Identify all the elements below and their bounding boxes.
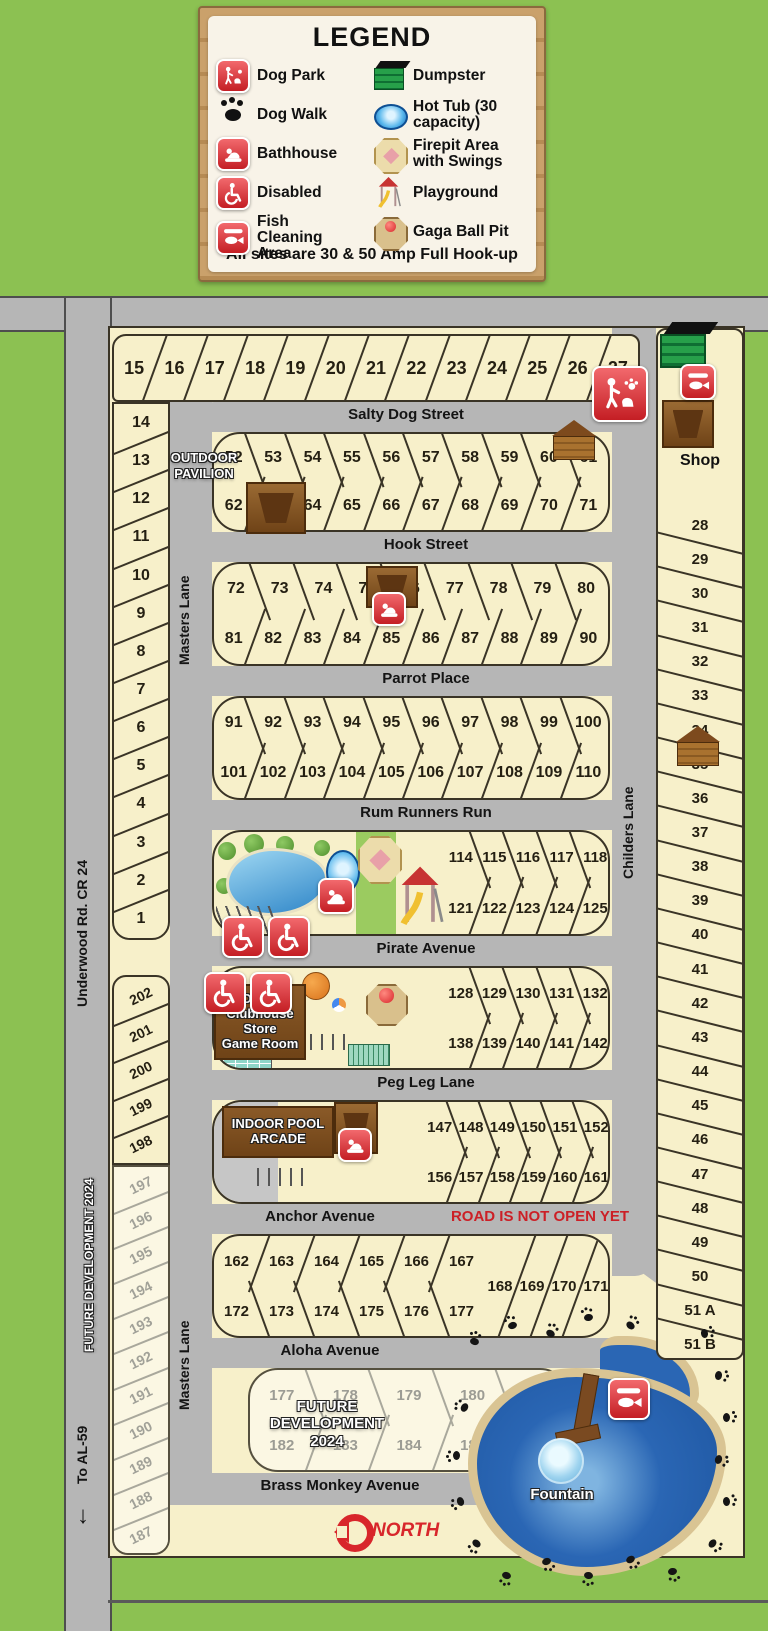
block-162-177: 162163164165166167 172173174175176177 16… [212,1234,610,1338]
dog-walk-paw-icon [453,1451,460,1460]
street-aloha: Aloha Avenue [210,1342,450,1359]
street-peg-leg: Peg Leg Lane [196,1074,656,1091]
playground-icon [372,176,406,210]
site-190: 190 [114,1413,168,1448]
firepit-icon [372,137,406,171]
site-12: 12 [114,480,168,518]
site-170: 170 [548,1236,580,1336]
street-parrot: Parrot Place [196,670,656,687]
legend-item-dog-park: Dog Park [216,58,372,94]
tree [314,840,330,856]
dog-park-icon [216,59,250,93]
fish-cleaning-icon-top [680,364,716,400]
site-171: 171 [580,1236,610,1336]
site-24: 24 [477,336,517,400]
parking-lines [248,1168,310,1186]
dog-walk-paw-icon [667,1567,677,1575]
disabled-icon-office-1 [204,972,246,1014]
gaga-ball-icon [372,215,406,249]
future-development-left-label: FUTURE DEVELOPMENT 2024 [82,1158,96,1373]
site-100: 100 [569,698,608,748]
street-brass-monkey: Brass Monkey Avenue [200,1477,480,1494]
dumpster-icon [660,322,706,368]
hot-tub-icon [372,98,406,132]
legend-item-playground: Playground [372,175,528,211]
site-125: 125 [578,883,610,934]
dog-walk-paw-icon [583,1571,593,1579]
site-197: 197 [114,1167,168,1202]
site-49: 49 [658,1225,742,1259]
street-hook: Hook Street [196,536,656,553]
site-48: 48 [658,1191,742,1225]
site-188: 188 [114,1483,168,1518]
legend-item-firepit: Firepit Area with Swings [372,136,528,172]
site-36: 36 [658,781,742,815]
site-167: 167 [439,1236,484,1286]
block-202-198: 202201200199198 [112,975,170,1165]
site-132: 132 [578,968,610,1018]
site-80: 80 [564,564,608,614]
north-label: NORTH [372,1520,439,1542]
disabled-icon-office-2 [250,972,292,1014]
gaga-ball-pit-icon [366,984,408,1026]
legend-footer: All sites are 30 & 50 Amp Full Hook-up [208,246,536,264]
dog-walk-paw-icon [216,98,250,132]
cabin-icon-61 [552,420,596,460]
volleyball-net-icon [348,1044,390,1066]
street-masters-upper: Masters Lane [176,555,192,685]
north-compass-icon [336,1514,374,1552]
block-top-row-15-27: 15161718192021222324252627 [112,334,640,402]
cabin-icon-35 [676,726,720,766]
site-187: 187 [114,1518,168,1553]
legend-item-dog-walk: Dog Walk [216,97,372,133]
basketball-icon [302,972,330,1000]
street-anchor: Anchor Avenue [210,1208,430,1225]
site-41: 41 [658,952,742,986]
site-17: 17 [195,336,235,400]
site-25: 25 [517,336,557,400]
road-not-open-note: ROAD IS NOT OPEN YET [430,1208,650,1225]
site-21: 21 [356,336,396,400]
tree [218,842,236,860]
site-118: 118 [578,832,610,883]
campground-map: 15161718192021222324252627 1413121110987… [0,0,768,1631]
beach-ball-icon [332,998,346,1012]
legend-item-hot-tub: Hot Tub (30 capacity) [372,97,528,133]
site-1: 1 [114,900,168,938]
legend-title: LEGEND [208,22,536,53]
bathhouse-icon [216,137,250,171]
shop-building [662,400,714,448]
site-152: 152 [581,1102,610,1152]
indoor-pool-sign: INDOOR POOL ARCADE [222,1106,334,1158]
street-to-al59: To AL-59 [74,1410,90,1500]
street-childers: Childers Lane [620,778,636,888]
south-boundary-line [108,1600,768,1603]
site-110: 110 [569,748,608,798]
firepit-icon [358,836,402,884]
indoor-pool-line: INDOOR POOL [232,1117,324,1132]
site-6: 6 [114,709,168,747]
legend-item-disabled: Disabled [216,175,372,211]
site-18: 18 [235,336,275,400]
dog-walk-paw-icon [723,1413,730,1422]
site-142: 142 [578,1018,610,1068]
street-pirate: Pirate Avenue [196,940,656,957]
shop-label: Shop [656,452,744,470]
site-194: 194 [114,1272,168,1307]
street-underwood: Underwood Rd. CR 24 [74,848,90,1018]
playground-icon [398,864,444,930]
legend-item-gaga-ball: Gaga Ball Pit [372,214,528,250]
office-line: Game Room [222,1037,299,1052]
site-201: 201 [114,1014,168,1051]
block-197-187-future: 197196195194193192191190189188187 [112,1165,170,1555]
block-72-90: 727374757677787980 81828384858687888990 [212,562,610,666]
fountain-icon [538,1438,584,1484]
site-30: 30 [658,576,742,610]
block-91-110: 919293949596979899100 101102103104105106… [212,696,610,800]
street-masters-lower: Masters Lane [176,1300,192,1430]
site-5: 5 [114,747,168,785]
legend-left-column: Dog Park Dog Walk Bathhouse Disabled [216,55,372,264]
site-196: 196 [114,1202,168,1237]
bathhouse-icon-pool [318,878,354,914]
legend-paper: LEGEND Dog Park Dog Walk Bathhouse [208,16,536,272]
block-right-column-28-51: 2829303132333435363738394041424344454647… [656,328,744,1360]
legend-item-bathhouse: Bathhouse [216,136,372,172]
dog-walk-paw-icon [501,1571,512,1581]
site-71: 71 [569,482,608,530]
disabled-icon [216,176,250,210]
site-20: 20 [316,336,356,400]
site-169: 169 [516,1236,548,1336]
dumpster-icon [372,59,406,93]
bathhouse-icon-hook [372,592,406,626]
street-salty-dog: Salty Dog Street [196,406,616,423]
bathhouse-icon-indoor-pool [338,1128,372,1162]
indoor-pool-line: ARCADE [250,1132,306,1147]
office-line: Store [243,1022,276,1037]
site-177: 177 [439,1286,484,1336]
site-90: 90 [569,614,608,664]
future-development-label: FUTUREDEVELOPMENT2024 [252,1398,402,1450]
legend-right-column: Dumpster Hot Tub (30 capacity) Firepit A… [372,55,528,264]
site-198: 198 [114,1126,168,1163]
fish-cleaning-icon [216,221,250,255]
outdoor-pavilion-building [246,482,306,534]
site-42: 42 [658,986,742,1020]
site-189: 189 [114,1448,168,1483]
fountain-label: Fountain [512,1486,612,1503]
fish-cleaning-icon-pond [608,1378,650,1420]
site-195: 195 [114,1237,168,1272]
legend-item-dumpster: Dumpster [372,58,528,94]
site-29: 29 [658,542,742,576]
legend-panel: LEGEND Dog Park Dog Walk Bathhouse [198,6,546,282]
site-15: 15 [114,336,154,400]
site-193: 193 [114,1307,168,1342]
south-arrow-icon: ↓ [77,1502,89,1530]
site-161: 161 [581,1152,610,1202]
site-202: 202 [114,977,168,1014]
outdoor-pavilion-label: OUTDOORPAVILION [158,450,250,481]
block-left-column-14-1: 1413121110987654321 [112,402,170,940]
street-rum-runners: Rum Runners Run [196,804,656,821]
